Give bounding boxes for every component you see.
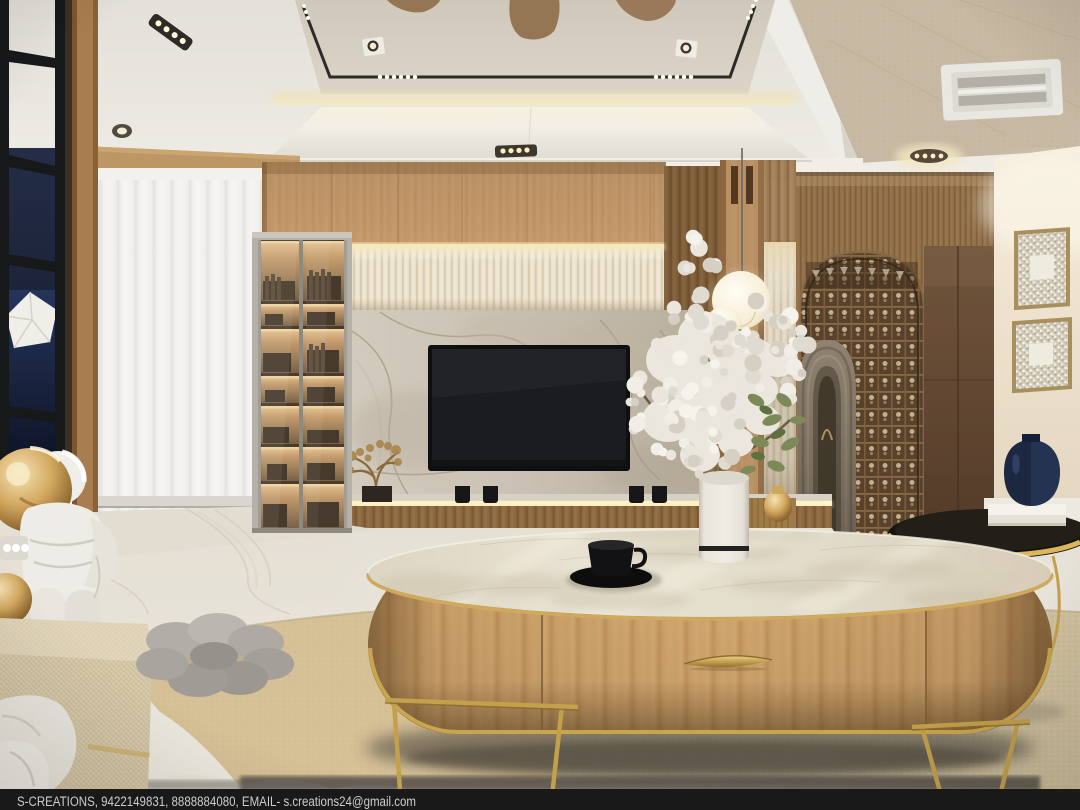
- svg-text:S-CREATIONS, 9422149831, 88888: S-CREATIONS, 9422149831, 8888884080, EMA…: [17, 794, 416, 809]
